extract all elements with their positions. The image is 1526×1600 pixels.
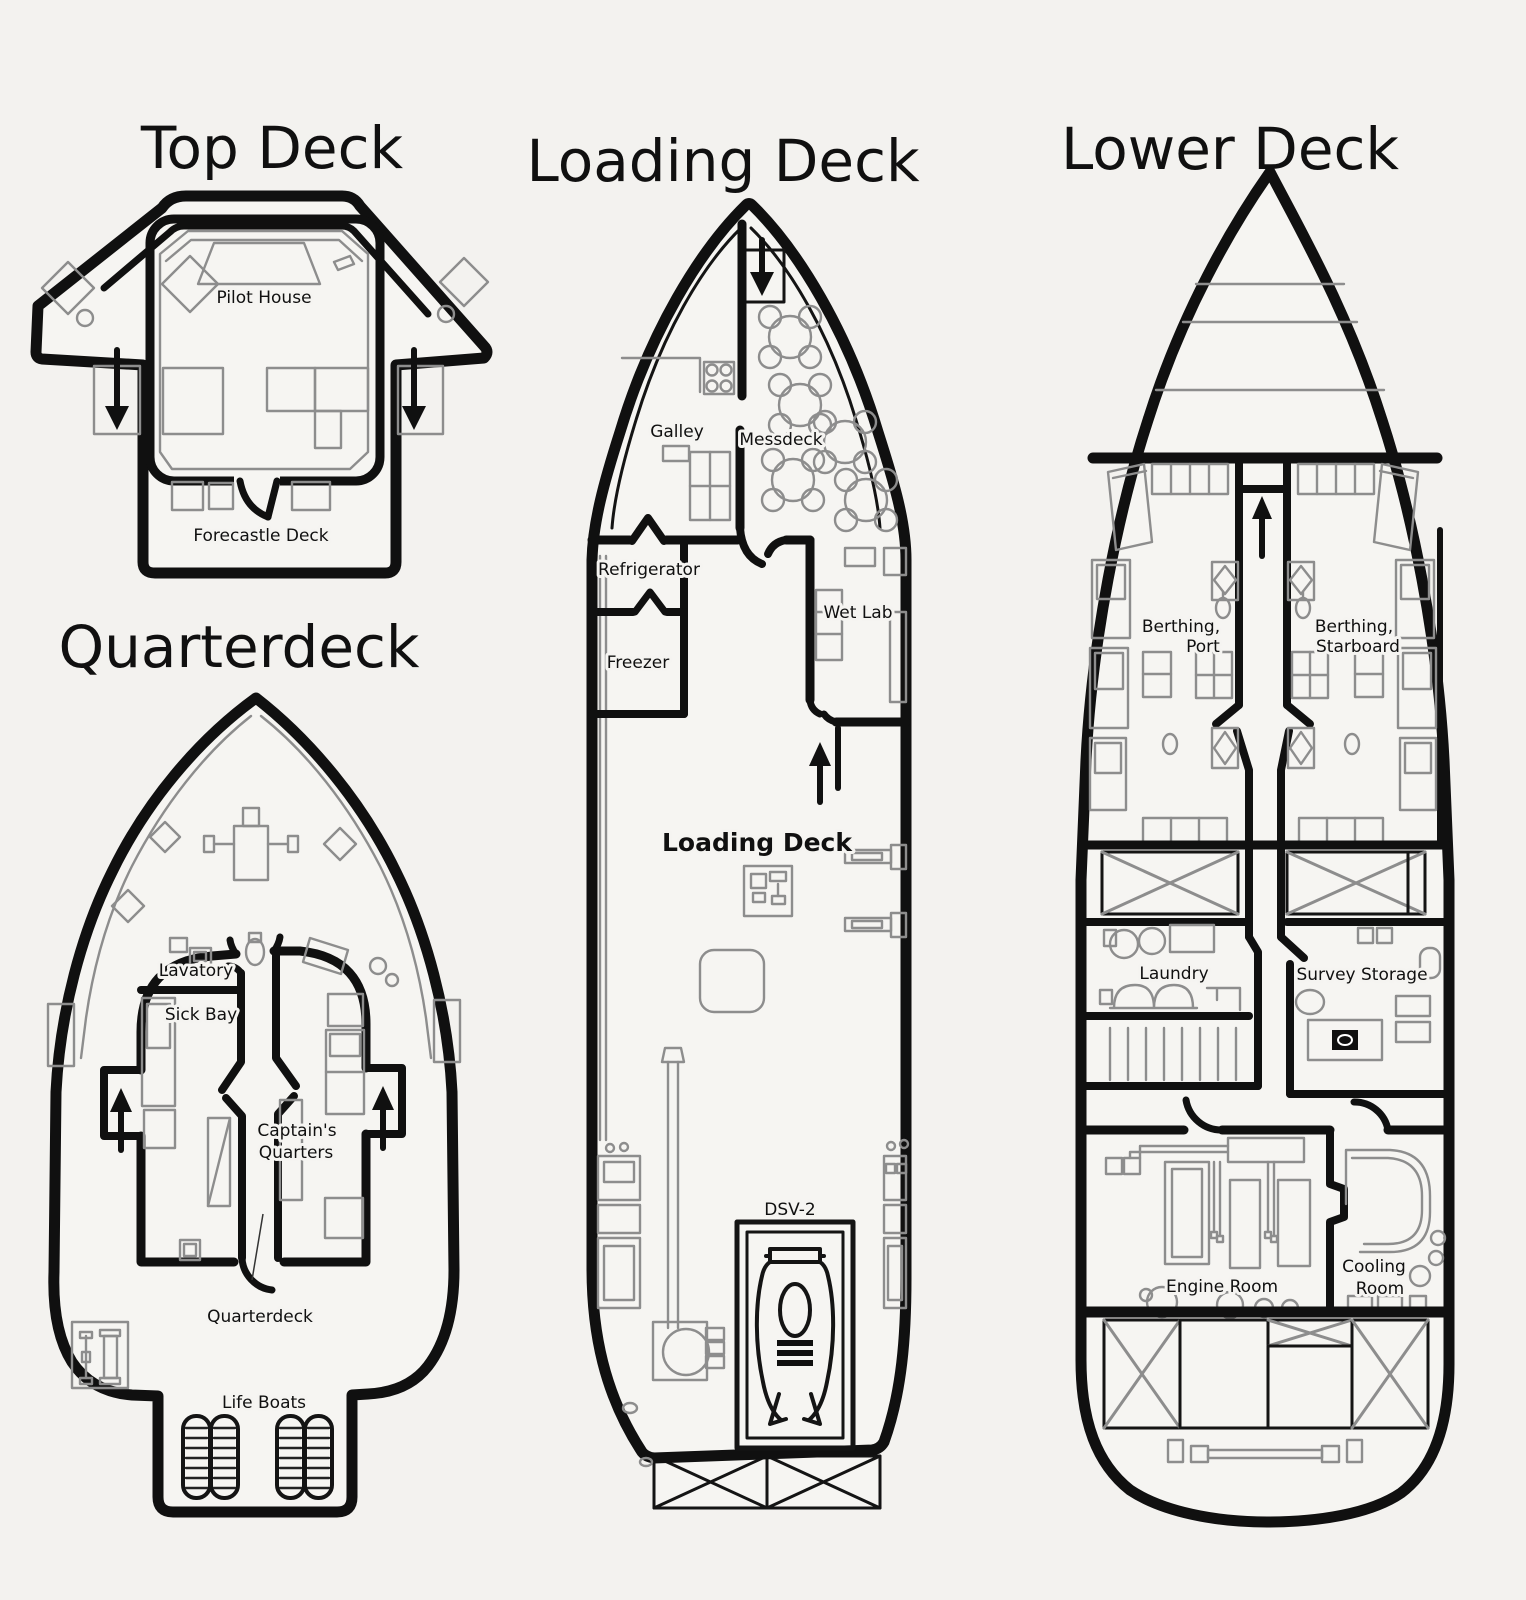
berthing-port-label-line2: Port bbox=[1186, 637, 1220, 657]
berthing-starboard-label-line2: Starboard bbox=[1316, 637, 1400, 657]
lavatory-label: Lavatory bbox=[159, 961, 233, 981]
cooling-room-label-line1: Cooling bbox=[1342, 1257, 1406, 1277]
cooling-room-label-line2: Room bbox=[1356, 1279, 1404, 1299]
wet-lab-label: Wet Lab bbox=[823, 603, 892, 623]
quarterdeck-label: Quarterdeck bbox=[207, 1307, 313, 1327]
dsv-2-label: DSV-2 bbox=[764, 1200, 815, 1220]
lower-deck-title: Lower Deck bbox=[1061, 115, 1399, 183]
berthing-starboard-label-line1: Berthing, bbox=[1315, 617, 1393, 637]
ship-deck-plans: Top Deck bbox=[0, 0, 1526, 1600]
top-deck-title: Top Deck bbox=[140, 114, 404, 182]
laundry-label: Laundry bbox=[1139, 964, 1208, 984]
quarterdeck-plan: Quarterdeck bbox=[48, 613, 460, 1512]
pilot-house-label: Pilot House bbox=[216, 288, 311, 308]
berthing-port-label-line1: Berthing, bbox=[1142, 617, 1220, 637]
loading-deck-label: Loading Deck bbox=[662, 828, 853, 857]
survey-storage-label: Survey Storage bbox=[1296, 965, 1427, 985]
galley-label: Galley bbox=[650, 422, 704, 442]
stern-platform bbox=[654, 1456, 880, 1508]
life-boats-label: Life Boats bbox=[222, 1393, 306, 1413]
loading-deck-title: Loading Deck bbox=[526, 127, 919, 195]
sick-bay-label: Sick Bay bbox=[165, 1005, 237, 1025]
refrigerator-label: Refrigerator bbox=[598, 560, 700, 580]
captains-quarters-label-line2: Quarters bbox=[259, 1143, 334, 1163]
messdeck-label: Messdeck bbox=[739, 430, 822, 450]
captains-quarters-label-line1: Captain's bbox=[257, 1121, 336, 1141]
forecastle-deck-label: Forecastle Deck bbox=[193, 526, 328, 546]
lower-deck-plan: Lower Deck bbox=[1061, 115, 1449, 1522]
freezer-label: Freezer bbox=[607, 653, 669, 673]
quarterdeck-title: Quarterdeck bbox=[58, 613, 419, 681]
loading-deck-plan: Loading Deck bbox=[526, 127, 919, 1508]
engine-room-label: Engine Room bbox=[1166, 1277, 1278, 1297]
top-deck-plan: Top Deck bbox=[36, 114, 488, 573]
